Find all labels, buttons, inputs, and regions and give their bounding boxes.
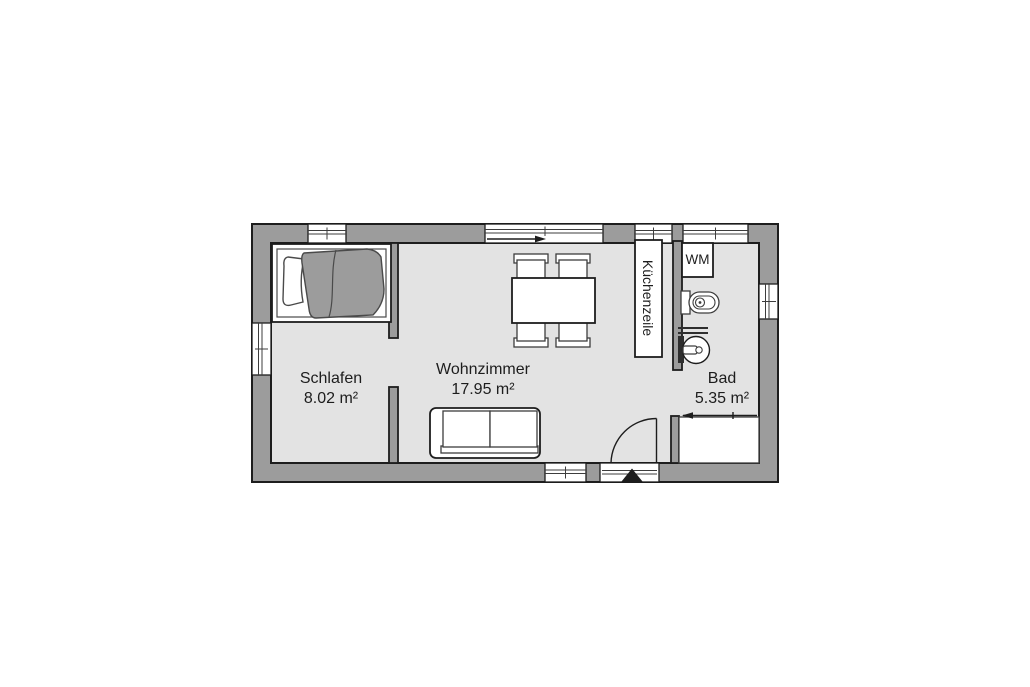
toilet <box>681 291 719 314</box>
window-living-bottom <box>545 463 586 482</box>
window-bath-right <box>759 284 778 319</box>
window-bath-top <box>683 224 748 243</box>
room-name: Schlafen <box>261 369 401 389</box>
kitchen-unit-label: Küchenzeile <box>639 233 657 363</box>
window-living-sliding <box>485 224 603 243</box>
room-area: 8.02 m² <box>261 389 401 409</box>
window-bedroom-left <box>252 323 271 375</box>
shower <box>679 412 759 463</box>
chair-top-right <box>556 254 590 281</box>
chair-top-left <box>514 254 548 281</box>
bed-blanket <box>302 249 384 318</box>
room-label-schlafen: Schlafen 8.02 m² <box>261 369 401 409</box>
bed-pillow <box>283 257 304 305</box>
chair-bottom-left <box>514 320 548 347</box>
room-area: 17.95 m² <box>413 380 553 400</box>
floorplan-canvas: Schlafen 8.02 m² Wohnzimmer 17.95 m² Bad… <box>0 0 1030 687</box>
dining-table <box>512 278 595 323</box>
sofa <box>430 408 540 458</box>
room-name: Bad <box>652 369 792 389</box>
room-area: 5.35 m² <box>652 389 792 409</box>
bed <box>272 244 391 322</box>
room-label-bad: Bad 5.35 m² <box>652 369 792 409</box>
window-bedroom-top <box>308 224 346 243</box>
chair-bottom-right <box>556 320 590 347</box>
washing-machine-label: WM <box>682 251 713 269</box>
floorplan-svg <box>0 0 1030 687</box>
interior-wall-shower <box>671 416 679 463</box>
room-name: Wohnzimmer <box>413 360 553 380</box>
room-label-wohnzimmer: Wohnzimmer 17.95 m² <box>413 360 553 400</box>
washbasin <box>678 336 710 364</box>
